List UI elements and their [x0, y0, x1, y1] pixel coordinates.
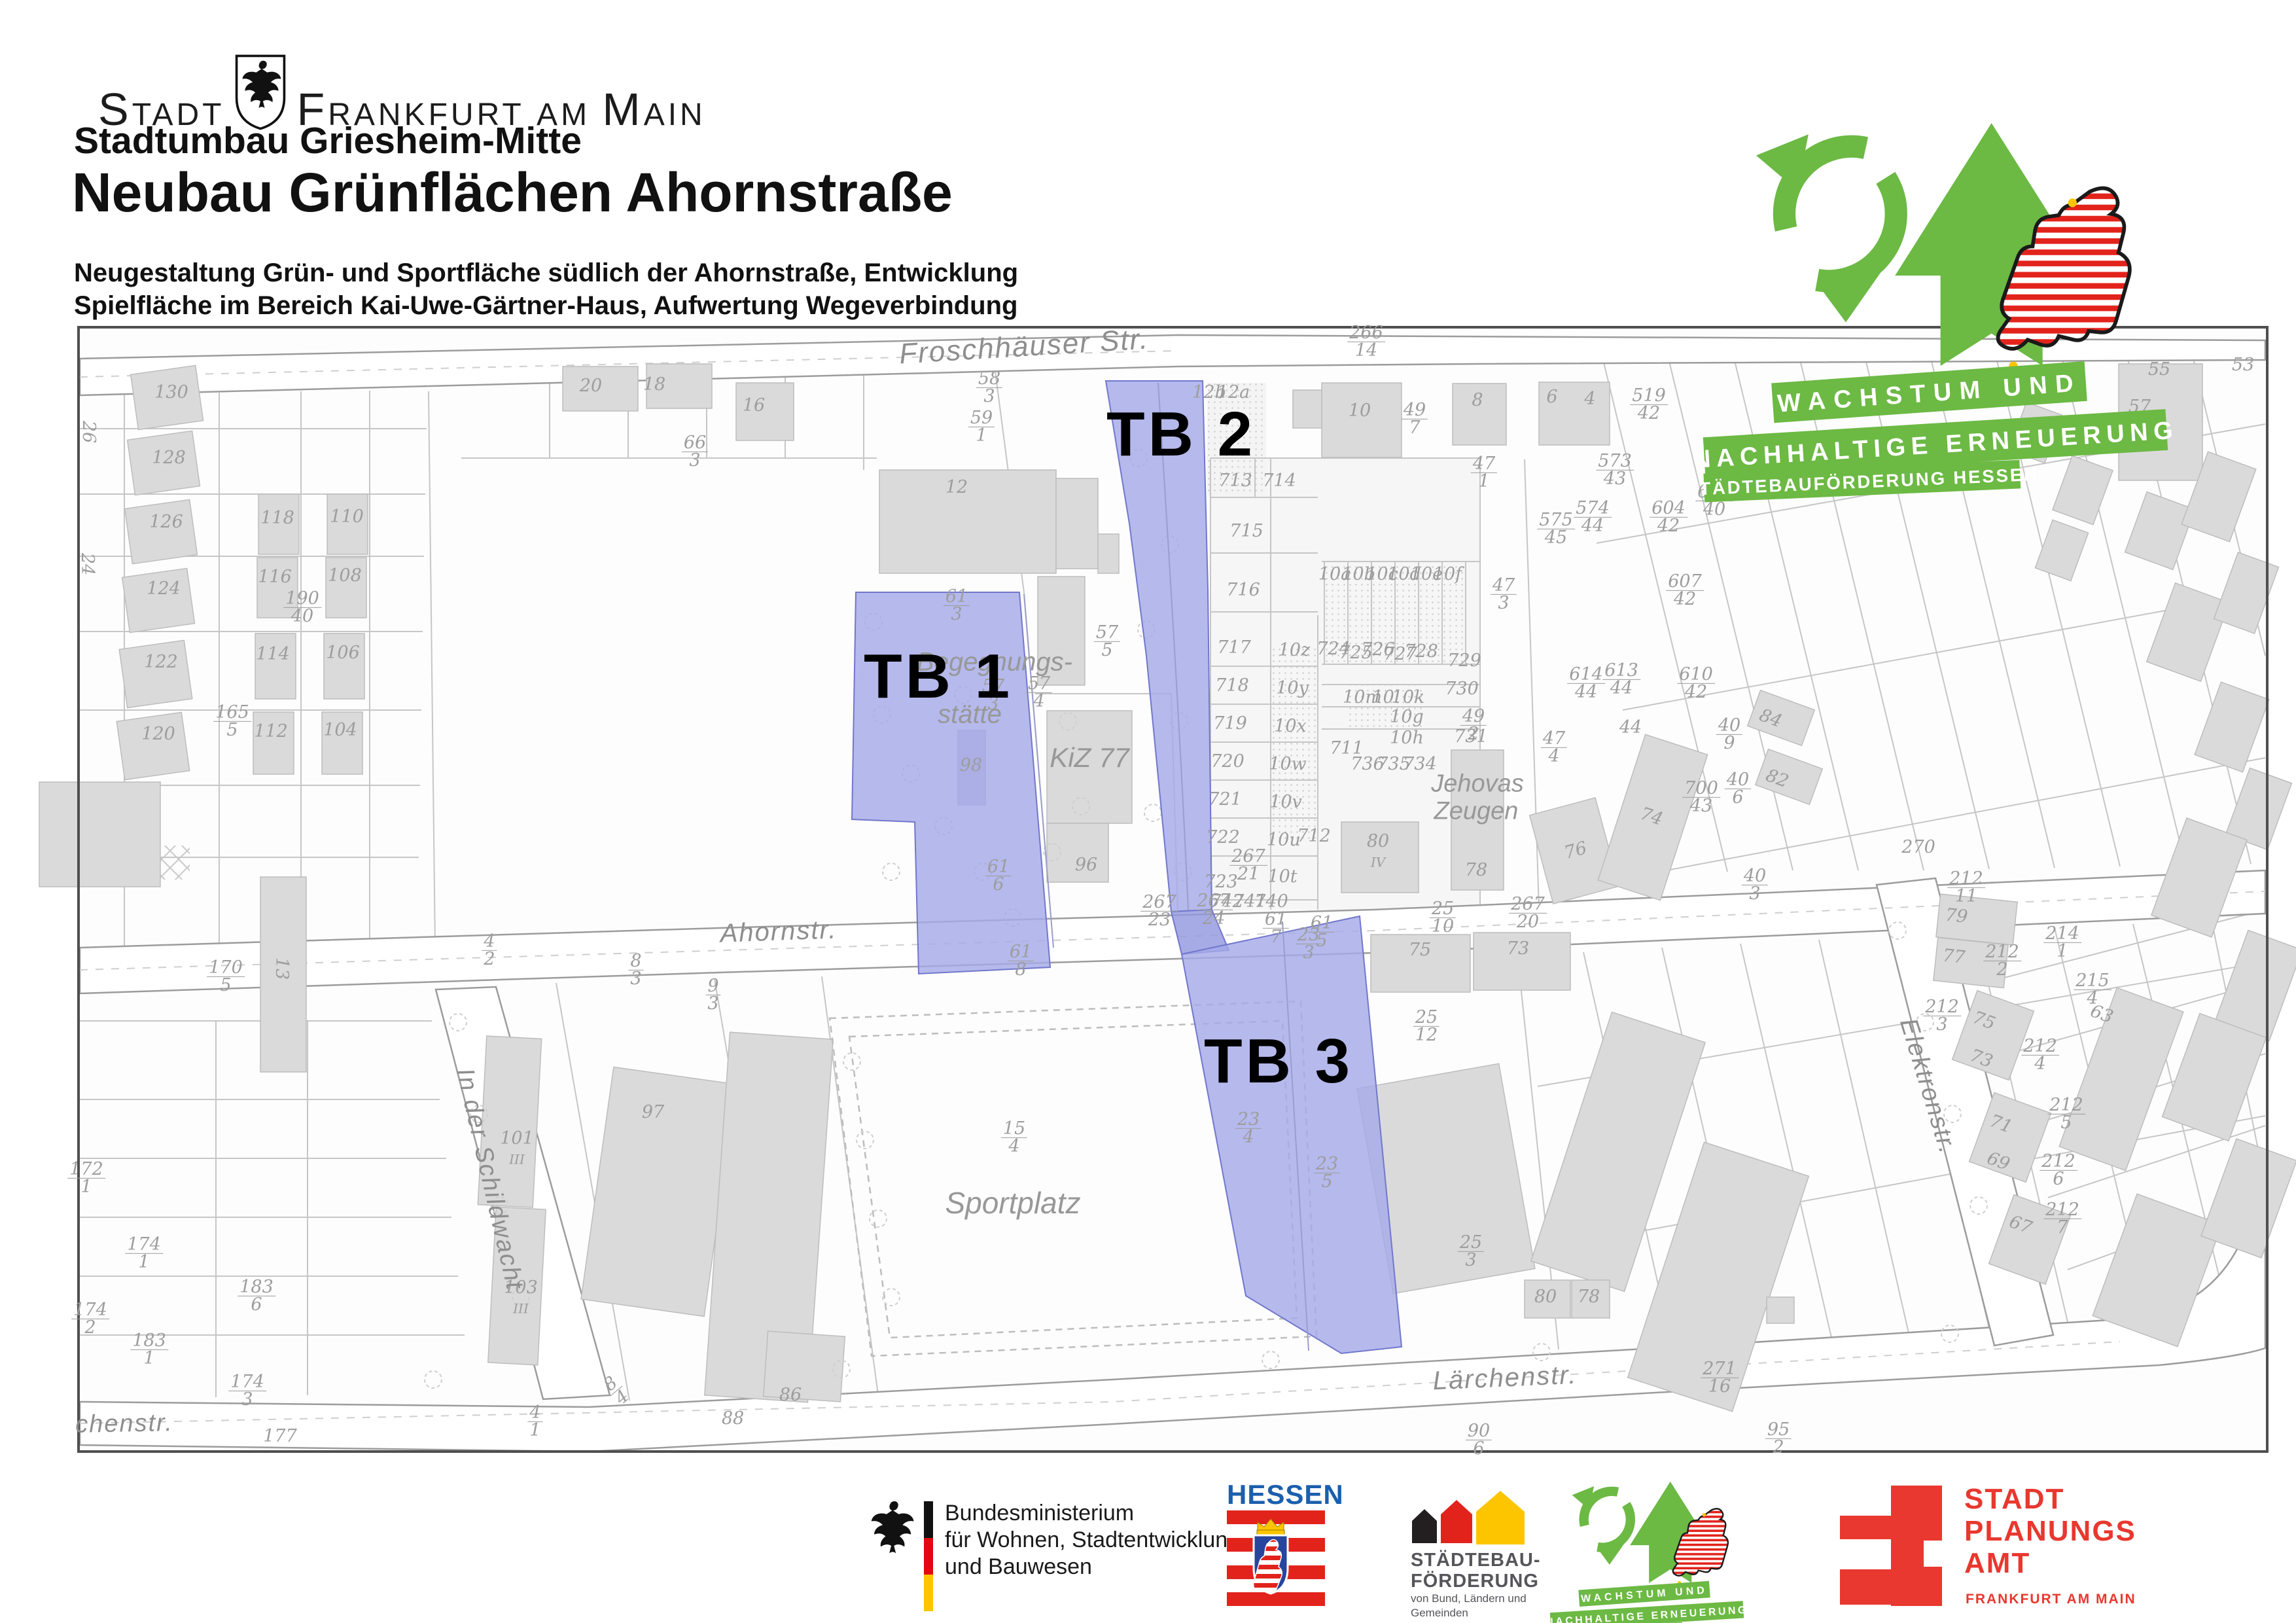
bmwsb-line2: für Wohnen, Stadtentwicklung — [945, 1527, 1240, 1554]
stadtplanungsamt-label: STADT PLANUNGS AMT — [1964, 1483, 2136, 1579]
bmwsb-line1: Bundesministerium — [945, 1500, 1240, 1527]
program-logo-large — [1699, 98, 2172, 509]
stadtplanungsamt-sub: FRANKFURT AM MAIN — [1966, 1592, 2136, 1607]
stb-line1: STÄDTEBAU- — [1411, 1550, 1541, 1571]
staedtebaufoerderung-sub: von Bund, Ländern und Gemeinden — [1411, 1592, 1527, 1620]
stadtplanungsamt-icon — [1840, 1484, 1942, 1606]
stpa-line1: STADT — [1964, 1483, 2136, 1515]
bmwsb-line3: und Bauwesen — [945, 1554, 1240, 1580]
stpa-line2: PLANUNGS — [1964, 1515, 2136, 1547]
hessen-wordmark: HESSEN — [1227, 1479, 1326, 1510]
stb-sub2: Gemeinden — [1411, 1606, 1527, 1620]
stb-line2: FÖRDERUNG — [1411, 1571, 1541, 1592]
plan-sheet: STADT FRANKFURT AM MAIN Stadtumbau Gries… — [0, 0, 2296, 1623]
staedtebaufoerderung-label: STÄDTEBAU- FÖRDERUNG — [1411, 1550, 1541, 1592]
staedtebaufoerderung-houses-icon — [1411, 1491, 1525, 1544]
bmwsb-label: Bundesministerium für Wohnen, Stadtentwi… — [945, 1500, 1240, 1580]
program-logo-small — [1548, 1471, 1746, 1623]
stb-sub1: von Bund, Ländern und — [1411, 1592, 1527, 1606]
hessen-coat-of-arms — [1227, 1510, 1325, 1606]
bundesadler-icon — [868, 1497, 936, 1613]
stpa-line3: AMT — [1964, 1547, 2136, 1579]
